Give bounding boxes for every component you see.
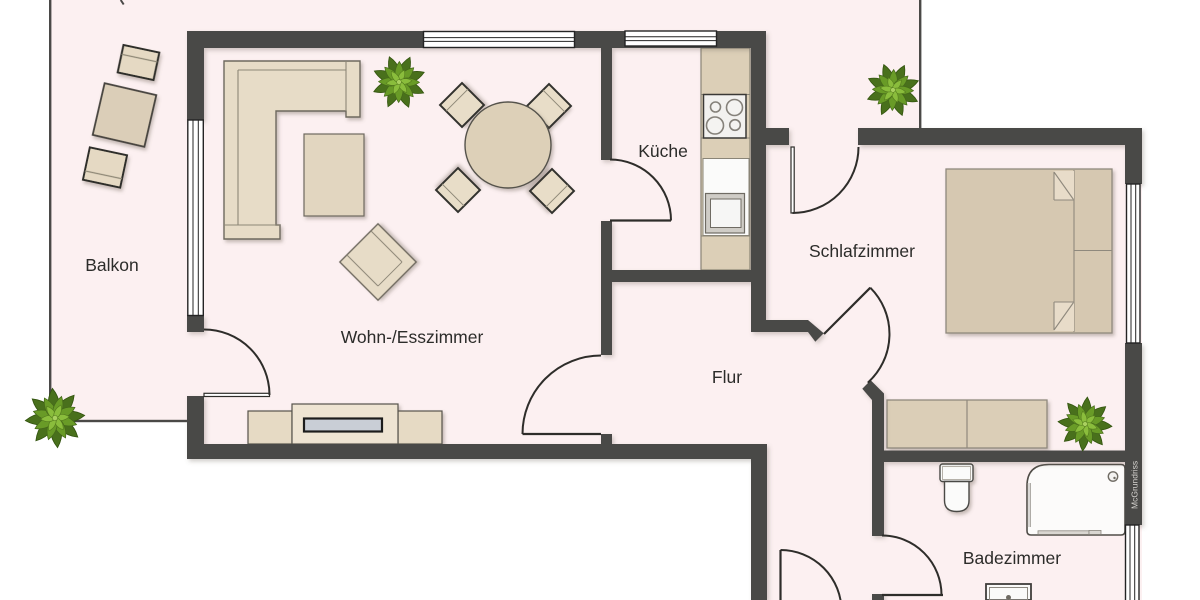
svg-text:McGrundriss: McGrundriss bbox=[1130, 461, 1140, 509]
svg-text:Badezimmer: Badezimmer bbox=[963, 548, 1061, 568]
svg-text:Flur: Flur bbox=[712, 367, 742, 387]
svg-text:Küche: Küche bbox=[638, 141, 688, 161]
svg-text:Schlafzimmer: Schlafzimmer bbox=[809, 241, 915, 261]
svg-text:Wohn-/Esszimmer: Wohn-/Esszimmer bbox=[341, 327, 484, 347]
svg-text:Balkon: Balkon bbox=[85, 255, 139, 275]
